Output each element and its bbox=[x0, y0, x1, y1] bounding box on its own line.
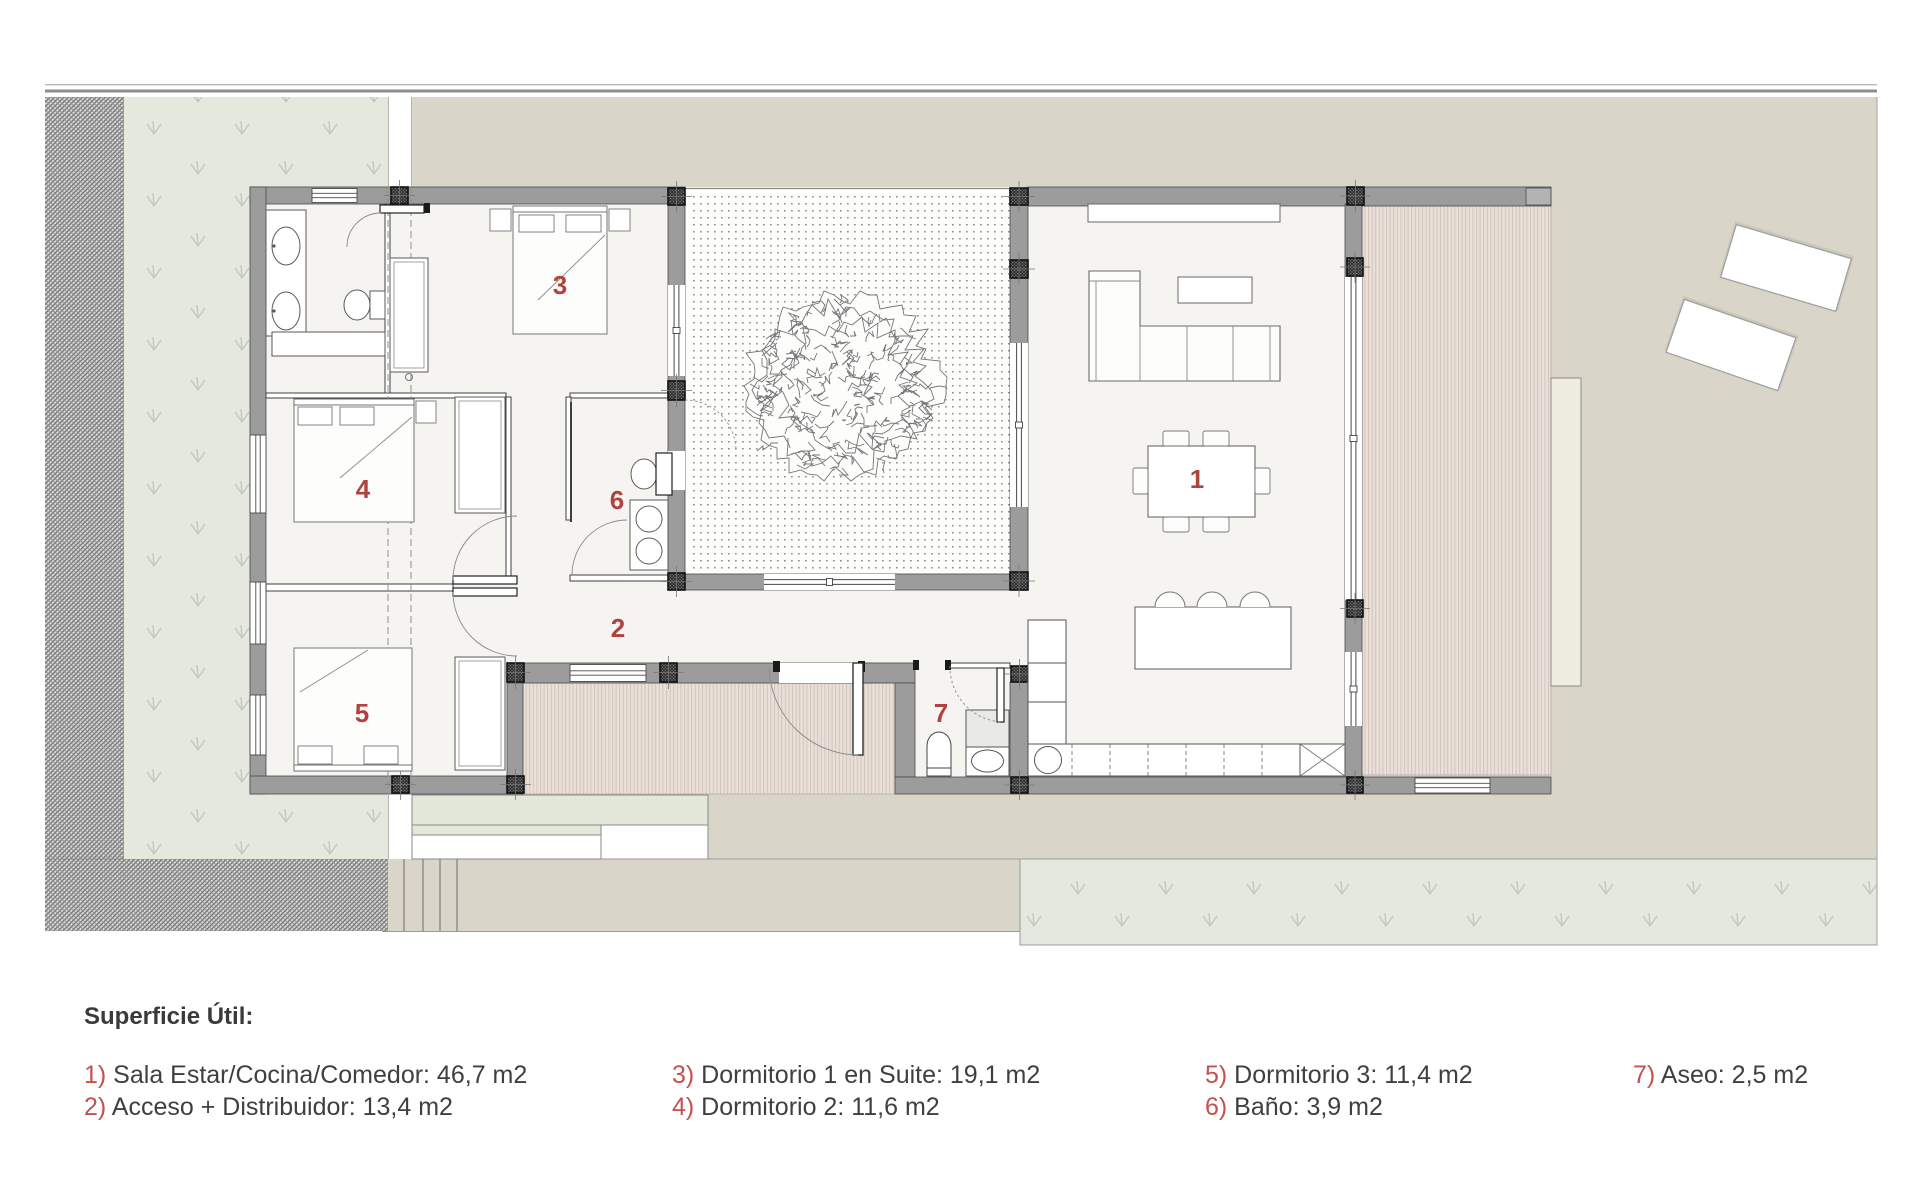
svg-text:4: 4 bbox=[356, 474, 371, 504]
svg-text:7) Aseo: 2,5 m2: 7) Aseo: 2,5 m2 bbox=[1633, 1061, 1808, 1089]
svg-text:3) Dormitorio 1 en Suite: 19,1: 3) Dormitorio 1 en Suite: 19,1 m2 bbox=[672, 1061, 1040, 1089]
svg-text:6) Baño: 3,9 m2: 6) Baño: 3,9 m2 bbox=[1205, 1093, 1383, 1121]
svg-text:1) Sala Estar/Cocina/Comedor:: 1) Sala Estar/Cocina/Comedor: 46,7 m2 bbox=[84, 1061, 527, 1089]
svg-text:7: 7 bbox=[934, 698, 948, 728]
svg-text:5: 5 bbox=[355, 698, 369, 728]
svg-text:3: 3 bbox=[553, 270, 567, 300]
svg-text:1: 1 bbox=[1190, 464, 1204, 494]
svg-text:5) Dormitorio 3: 11,4 m2: 5) Dormitorio 3: 11,4 m2 bbox=[1205, 1061, 1473, 1089]
svg-text:4) Dormitorio 2: 11,6 m2: 4) Dormitorio 2: 11,6 m2 bbox=[672, 1093, 940, 1121]
svg-text:Superficie Útil:: Superficie Útil: bbox=[84, 1002, 253, 1030]
svg-text:2) Acceso + Distribuidor: 13,4: 2) Acceso + Distribuidor: 13,4 m2 bbox=[84, 1093, 453, 1121]
svg-text:2: 2 bbox=[611, 613, 625, 643]
svg-text:6: 6 bbox=[610, 485, 624, 515]
